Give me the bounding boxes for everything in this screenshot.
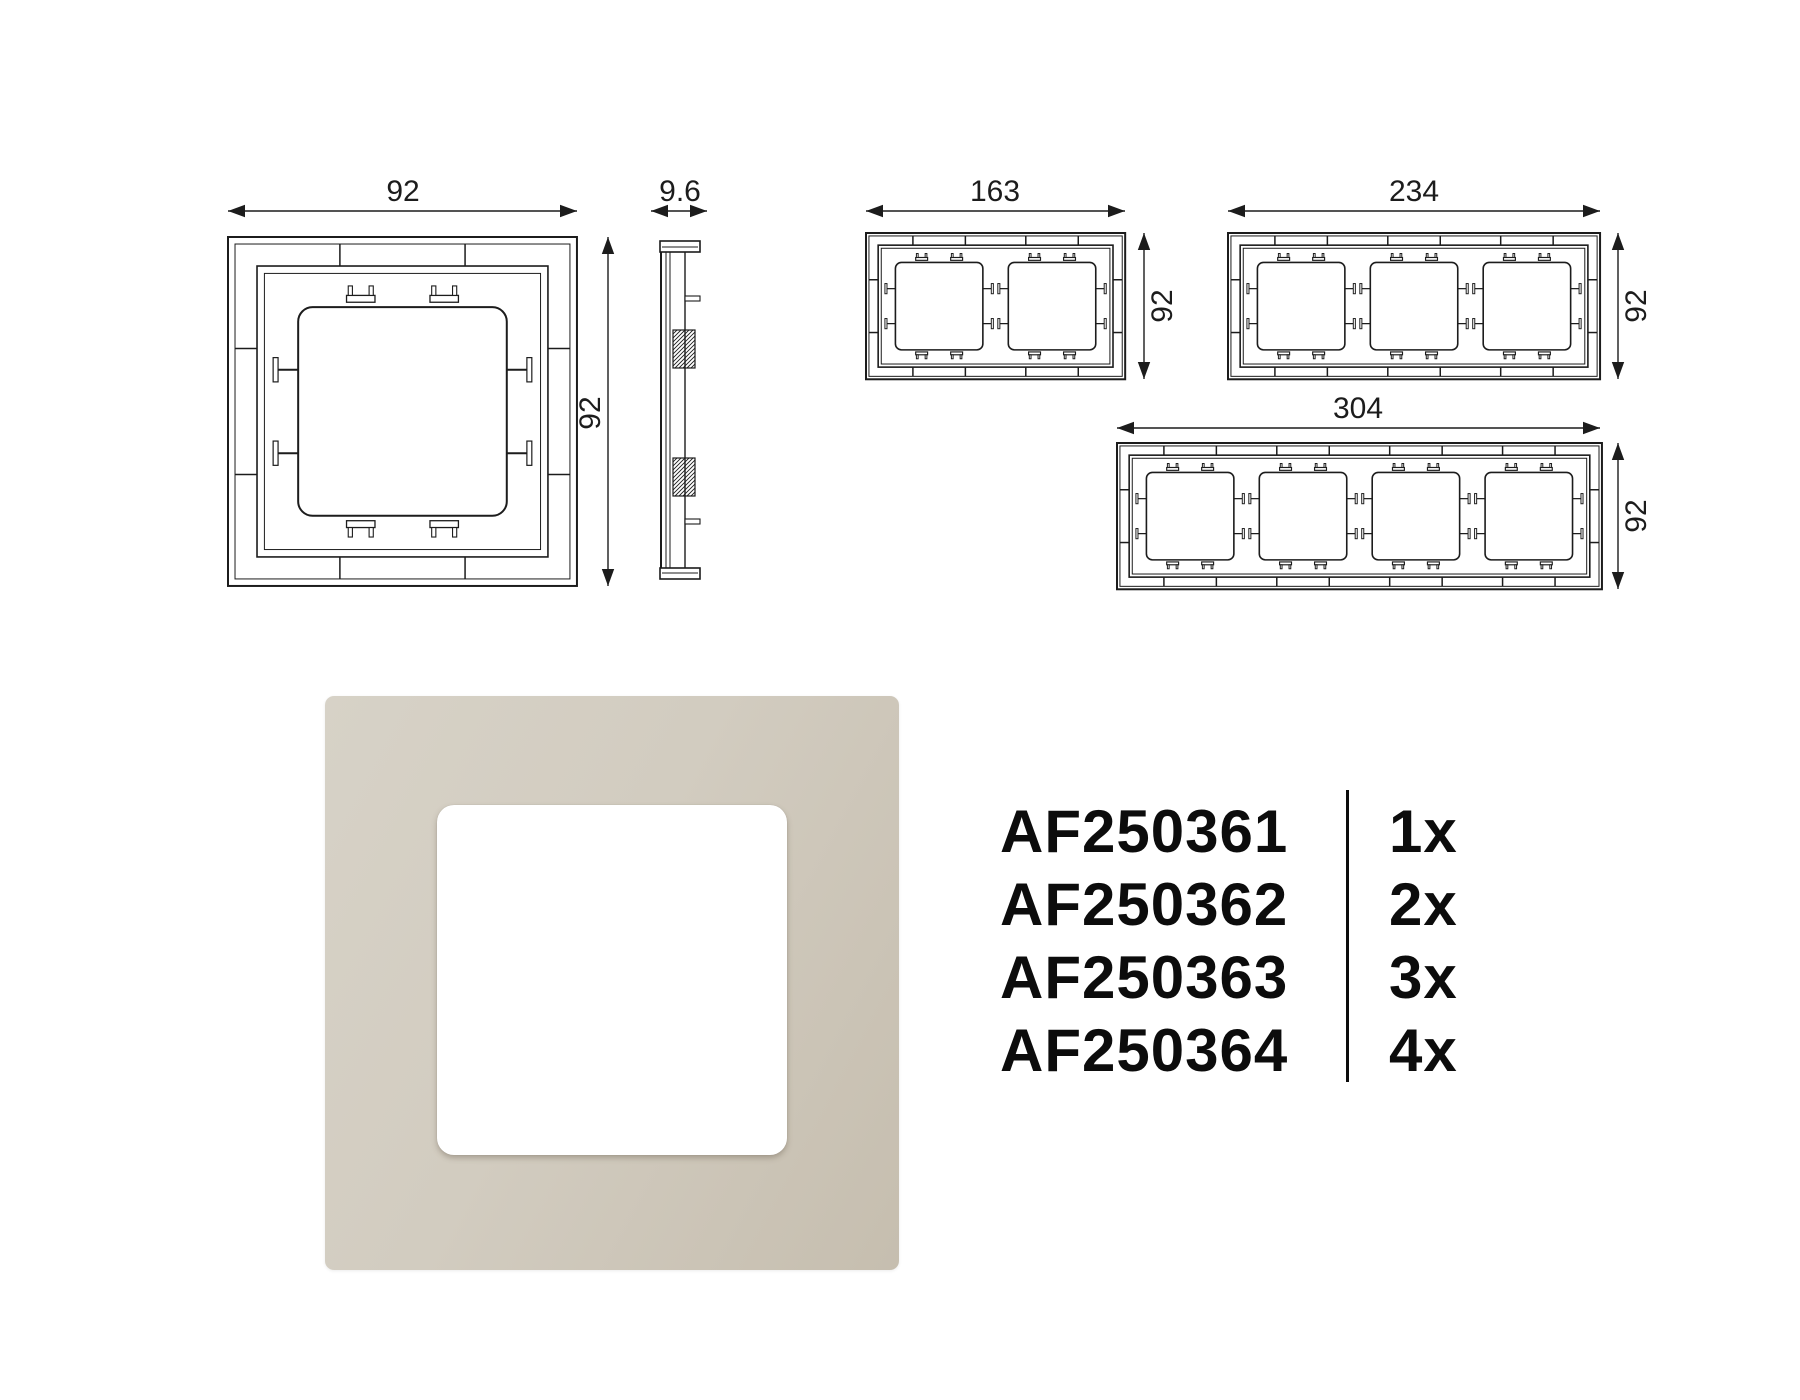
product-list-row: AF2503622x [1000, 868, 1560, 941]
list-divider [1346, 790, 1349, 1082]
product-code: AF250361 [1000, 797, 1389, 866]
product-list-row: AF2503644x [1000, 1014, 1560, 1087]
dim-label-three-gang-width: 234 [1389, 175, 1439, 208]
technical-drawings-svg: 92 92 9.6 163 92 234 92 304 92 [0, 0, 1800, 1400]
drawing-linework [228, 205, 1624, 589]
product-qty: 1x [1389, 797, 1458, 866]
dim-label-single-width: 92 [386, 175, 419, 208]
product-qty: 2x [1389, 870, 1458, 939]
product-qty: 3x [1389, 943, 1458, 1012]
product-list-row: AF2503611x [1000, 795, 1560, 868]
product-list: AF2503611xAF2503622xAF2503633xAF2503644x [1000, 795, 1560, 1087]
product-list-row: AF2503633x [1000, 941, 1560, 1014]
product-qty: 4x [1389, 1016, 1458, 1085]
dim-label-single-height: 92 [574, 396, 607, 429]
product-code: AF250363 [1000, 943, 1389, 1012]
dim-label-three-gang-height: 92 [1620, 289, 1653, 322]
product-photo [325, 696, 899, 1270]
product-code: AF250362 [1000, 870, 1389, 939]
product-photo-cutout [437, 805, 787, 1155]
spec-sheet-page: { "dimensions": { "single_front": { "wid… [0, 0, 1800, 1400]
dim-label-two-gang-height: 92 [1146, 289, 1179, 322]
product-code: AF250364 [1000, 1016, 1389, 1085]
dim-label-four-gang-height: 92 [1620, 499, 1653, 532]
dim-label-two-gang-width: 163 [970, 175, 1020, 208]
dim-label-four-gang-width: 304 [1333, 392, 1383, 425]
dim-label-side-thickness: 9.6 [659, 175, 701, 208]
